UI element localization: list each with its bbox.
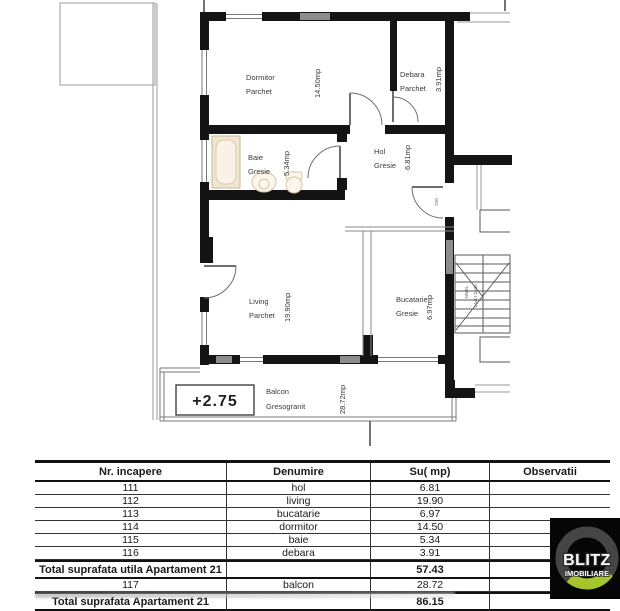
room-hol-name: Hol: [374, 147, 386, 156]
elevation-box: +2.75: [176, 385, 254, 415]
table-row: 113bucatarie6.97: [35, 508, 610, 521]
stair-step-label: 14x17,5x30: [473, 284, 478, 308]
walls: [200, 12, 512, 398]
room-balcon-area: 28.72mp: [338, 385, 347, 414]
room-living-area: 19.90mp: [283, 293, 292, 322]
room-dormitor-area: 14.50mp: [313, 69, 322, 98]
table-row: 111hol6.81: [35, 482, 610, 495]
room-balcon-finish: Gresogranit: [266, 402, 306, 411]
axis-ticks: [204, 0, 505, 446]
surface-table: Nr. incapere Denumire Su( mp) Observatii…: [35, 460, 610, 611]
table-row: 112living19.90: [35, 495, 610, 508]
room-balcon-name: Balcon: [266, 387, 289, 396]
room-bucatarie-finish: Gresie: [396, 309, 418, 318]
floor-plan: 210: [0, 0, 620, 458]
stair-level-label: NIVEL: [464, 285, 469, 299]
scan-smudge: [35, 592, 455, 598]
room-hol-area: 6.81mp: [403, 145, 412, 170]
room-dormitor-finish: Parchet: [246, 87, 273, 96]
table-row: 117balcon28.72: [35, 579, 610, 592]
room-baie-area: 5.34mp: [282, 151, 291, 176]
table-row: 114dormitor14.50: [35, 521, 610, 534]
room-debara-name: Debara: [400, 70, 425, 79]
room-baie-finish: Gresie: [248, 167, 270, 176]
room-bucatarie-area: 6.97mp: [425, 295, 434, 320]
header-observatii: Observatii: [490, 463, 610, 480]
table-row: 115baie5.34: [35, 534, 610, 547]
header-nr-incapere: Nr. incapere: [35, 463, 227, 480]
table-total-utila-row: Total suprafata utila Apartament 2157.43: [35, 560, 610, 579]
room-hol-finish: Gresie: [374, 161, 396, 170]
room-dormitor-name: Dormitor: [246, 73, 275, 82]
partitions: [345, 227, 454, 356]
room-living-name: Living: [249, 297, 269, 306]
bathtub: [212, 136, 240, 188]
room-living-finish: Parchet: [249, 311, 276, 320]
elevation-label: +2.75: [192, 393, 237, 410]
logo-text-line1: BLITZ: [563, 552, 611, 569]
agency-logo: BLITZ IMOBILIARE: [550, 518, 620, 599]
table-row: 116debara3.91: [35, 547, 610, 560]
header-denumire: Denumire: [227, 463, 371, 480]
room-bucatarie-name: Bucatarie: [396, 295, 428, 304]
header-su-mp: Su( mp): [371, 463, 490, 480]
entrance-door-width-label: 210: [434, 198, 439, 206]
room-debara-finish: Parchet: [400, 84, 427, 93]
logo-text-line2: IMOBILIARE: [565, 569, 609, 578]
room-debara-area: 3.91mp: [434, 67, 443, 92]
table-header-row: Nr. incapere Denumire Su( mp) Observatii: [35, 463, 610, 482]
room-baie-name: Baie: [248, 153, 263, 162]
